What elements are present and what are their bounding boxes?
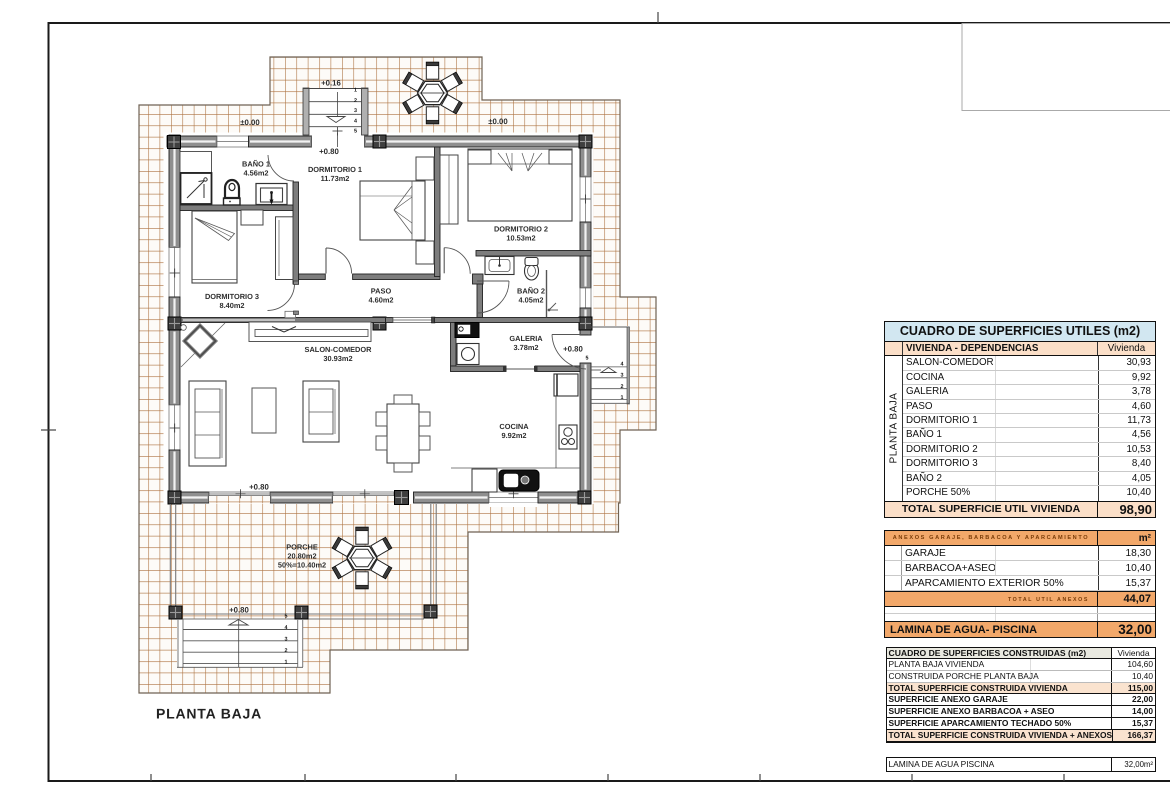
svg-text:4.60m2: 4.60m2 — [368, 296, 393, 305]
svg-text:GALERIA: GALERIA — [509, 334, 543, 343]
svg-text:10.53m2: 10.53m2 — [506, 234, 535, 243]
svg-text:30.93m2: 30.93m2 — [323, 354, 352, 363]
svg-text:3: 3 — [354, 108, 357, 114]
svg-text:8.40m2: 8.40m2 — [219, 301, 244, 310]
svg-text:3: 3 — [621, 373, 624, 379]
svg-text:20.80m2: 20.80m2 — [287, 552, 316, 561]
svg-text:PORCHE: PORCHE — [286, 543, 318, 552]
svg-text:COCINA: COCINA — [499, 422, 529, 431]
svg-text:4: 4 — [621, 362, 624, 368]
svg-text:1: 1 — [285, 659, 288, 665]
svg-text:+0.80: +0.80 — [229, 606, 249, 615]
svg-text:PLANTA BAJA: PLANTA BAJA — [156, 706, 262, 722]
svg-text:3.78m2: 3.78m2 — [513, 343, 538, 352]
svg-text:DORMITORIO 3: DORMITORIO 3 — [205, 292, 259, 301]
svg-text:±0.00: ±0.00 — [240, 118, 260, 127]
svg-text:SALON-COMEDOR: SALON-COMEDOR — [305, 345, 373, 354]
svg-text:DORMITORIO 1: DORMITORIO 1 — [308, 165, 362, 174]
svg-text:+0.80: +0.80 — [319, 147, 339, 156]
svg-text:5: 5 — [354, 129, 357, 135]
svg-text:DORMITORIO 2: DORMITORIO 2 — [494, 225, 548, 234]
svg-text:2: 2 — [621, 384, 624, 390]
svg-text:2: 2 — [285, 648, 288, 654]
svg-text:+0.80: +0.80 — [563, 345, 583, 354]
svg-text:5: 5 — [586, 356, 589, 362]
svg-text:BAÑO 2: BAÑO 2 — [517, 287, 545, 296]
svg-text:+0.16: +0.16 — [321, 79, 341, 88]
svg-text:4: 4 — [354, 118, 357, 124]
svg-text:9.92m2: 9.92m2 — [501, 431, 526, 440]
svg-text:3: 3 — [285, 636, 288, 642]
svg-text:±0.00: ±0.00 — [488, 117, 508, 126]
svg-text:1: 1 — [354, 88, 357, 94]
svg-text:4.56m2: 4.56m2 — [243, 169, 268, 178]
svg-text:PASO: PASO — [371, 287, 392, 296]
svg-text:4.05m2: 4.05m2 — [518, 296, 543, 305]
svg-text:4: 4 — [285, 625, 288, 631]
svg-text:BAÑO 1: BAÑO 1 — [242, 160, 270, 169]
svg-text:+0.80: +0.80 — [249, 483, 269, 492]
svg-text:2: 2 — [354, 98, 357, 104]
svg-text:5: 5 — [285, 613, 288, 619]
svg-text:50%=10.40m2: 50%=10.40m2 — [278, 561, 326, 570]
svg-text:1: 1 — [621, 395, 624, 401]
svg-text:11.73m2: 11.73m2 — [321, 174, 350, 183]
